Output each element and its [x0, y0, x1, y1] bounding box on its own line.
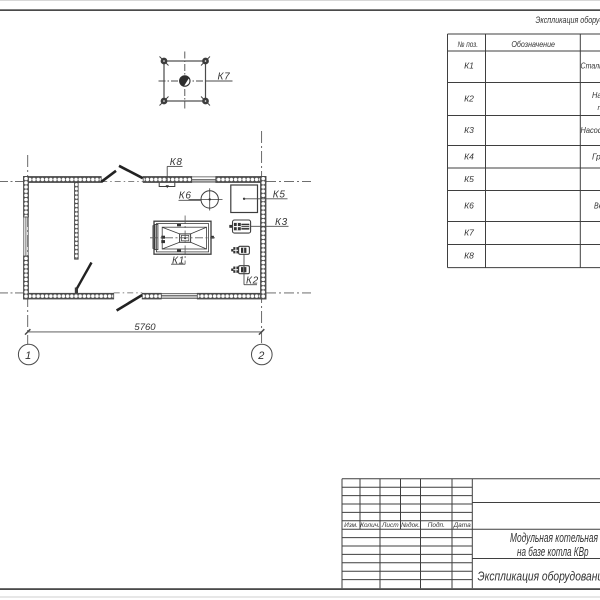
svg-text:№ поз.: № поз.: [458, 40, 479, 49]
svg-text:К4: К4: [464, 152, 474, 162]
svg-text:2: 2: [257, 350, 264, 362]
svg-text:на базе котла КВр: на базе котла КВр: [517, 545, 589, 559]
svg-text:1: 1: [25, 350, 31, 362]
svg-text:К7: К7: [464, 228, 474, 238]
svg-text:Насос: Насос: [592, 90, 600, 100]
svg-text:К2: К2: [246, 275, 259, 286]
svg-text:К6: К6: [464, 201, 474, 211]
svg-text:К5: К5: [273, 189, 286, 200]
svg-text:Модульная котельная: Модульная котельная: [510, 531, 598, 545]
svg-text:К6: К6: [179, 191, 192, 202]
svg-text:К3: К3: [275, 217, 288, 228]
svg-text:Экспликация оборудования: Экспликация оборудования: [536, 15, 600, 25]
svg-text:К7: К7: [218, 72, 231, 83]
svg-text:К2: К2: [464, 94, 474, 104]
svg-text:5760: 5760: [134, 322, 156, 333]
svg-text:К8: К8: [464, 251, 474, 261]
svg-text:Лист: Лист: [381, 522, 399, 529]
svg-text:К8: К8: [170, 157, 183, 168]
svg-text:К1: К1: [464, 61, 474, 71]
svg-text:Экспликация оборудования: Экспликация оборудования: [478, 569, 600, 583]
svg-text:Обозначение: Обозначение: [511, 39, 555, 49]
svg-text:Стальной: Стальной: [581, 61, 600, 71]
svg-text:К1: К1: [172, 255, 185, 266]
svg-text:Дата: Дата: [453, 522, 472, 529]
svg-text:№док.: №док.: [401, 521, 420, 529]
svg-text:Изм.: Изм.: [344, 522, 358, 529]
svg-text:Вентиля: Вентиля: [594, 201, 600, 211]
svg-text:К5: К5: [464, 174, 474, 184]
svg-text:Грязевик: Грязевик: [592, 152, 600, 162]
svg-text:Насос: Насос: [581, 125, 600, 135]
svg-text:К3: К3: [464, 125, 474, 135]
svg-text:Колич.: Колич.: [360, 522, 380, 529]
svg-text:Подп.: Подп.: [428, 521, 445, 529]
